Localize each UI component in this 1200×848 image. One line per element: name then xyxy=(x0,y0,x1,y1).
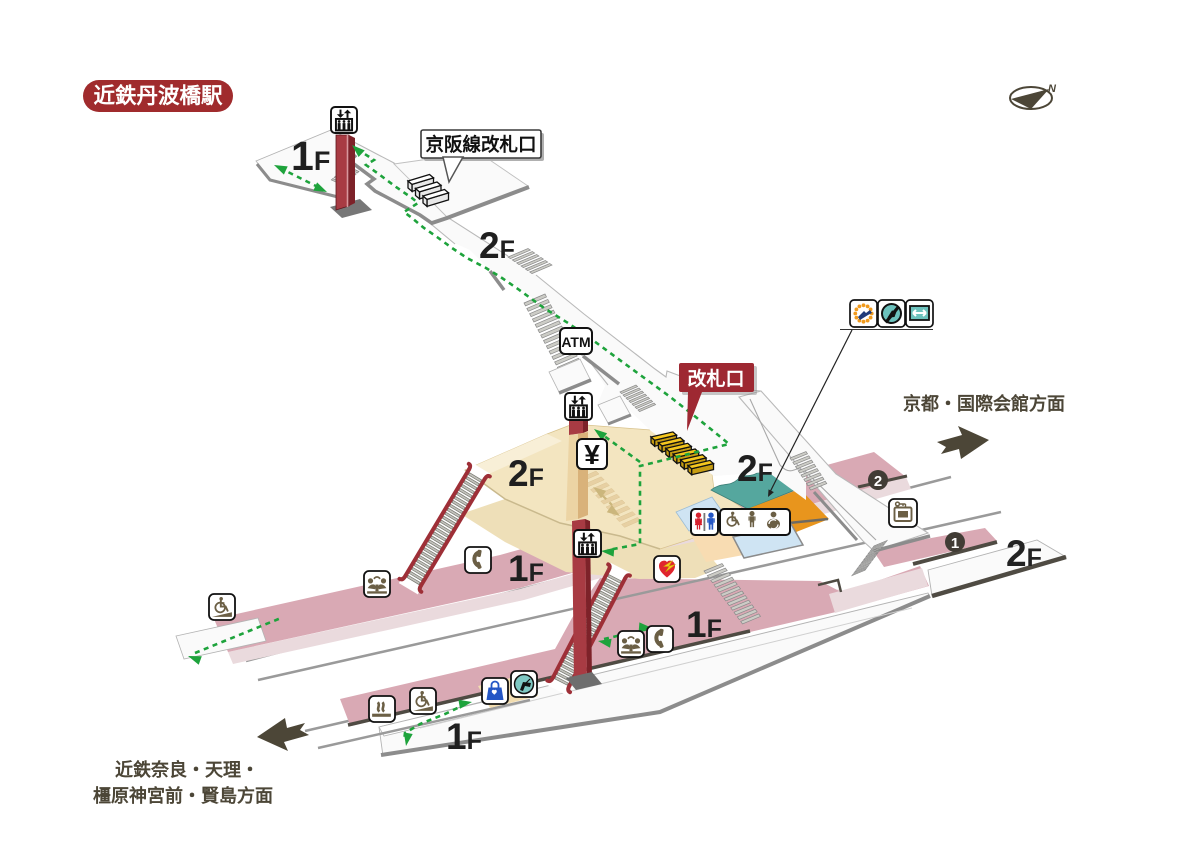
svg-text:橿原神宮前・賢島方面: 橿原神宮前・賢島方面 xyxy=(93,785,273,806)
svg-text:2: 2 xyxy=(874,473,882,490)
svg-text:1: 1 xyxy=(951,535,959,552)
svg-text:近鉄丹波橋駅: 近鉄丹波橋駅 xyxy=(93,83,223,108)
svg-text:¥: ¥ xyxy=(584,439,600,470)
svg-text:京阪線改札口: 京阪線改札口 xyxy=(425,134,536,155)
svg-text:ATM: ATM xyxy=(561,334,590,350)
svg-text:改札口: 改札口 xyxy=(687,367,744,390)
svg-text:京都・国際会館方面: 京都・国際会館方面 xyxy=(903,393,1065,414)
svg-text:N: N xyxy=(1048,83,1057,95)
svg-text:近鉄奈良・天理・: 近鉄奈良・天理・ xyxy=(115,759,259,780)
